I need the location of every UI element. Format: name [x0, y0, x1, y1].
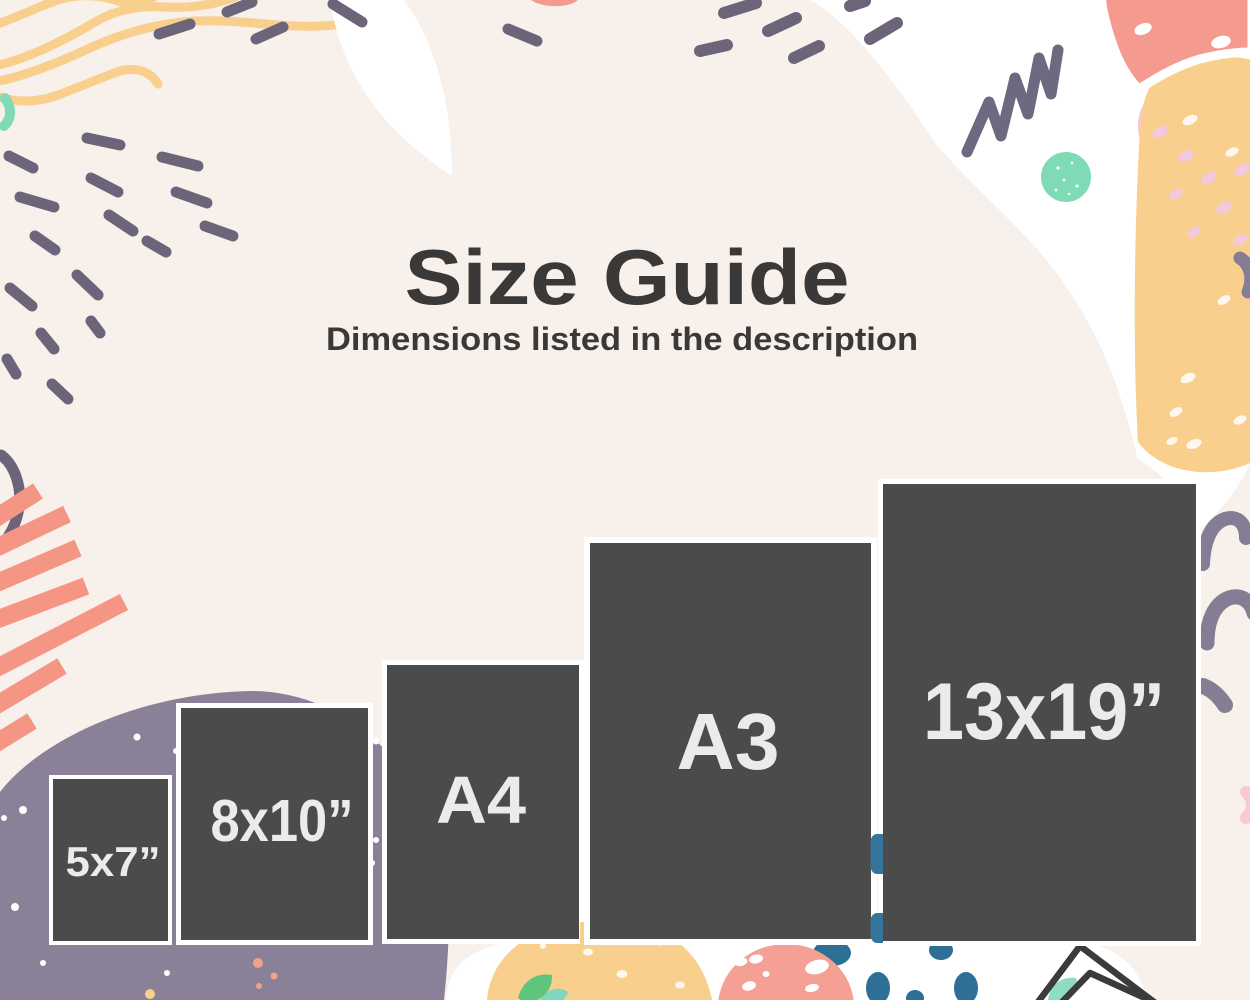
svg-text:5x7”: 5x7” [66, 838, 161, 885]
svg-text:13x19”: 13x19” [923, 667, 1165, 757]
svg-text:A3: A3 [677, 697, 780, 786]
svg-text:Size Guide: Size Guide [405, 233, 850, 321]
svg-text:Dimensions listed in the descr: Dimensions listed in the description [326, 321, 918, 357]
svg-text:8x10”: 8x10” [211, 788, 354, 854]
svg-text:A4: A4 [436, 763, 526, 838]
